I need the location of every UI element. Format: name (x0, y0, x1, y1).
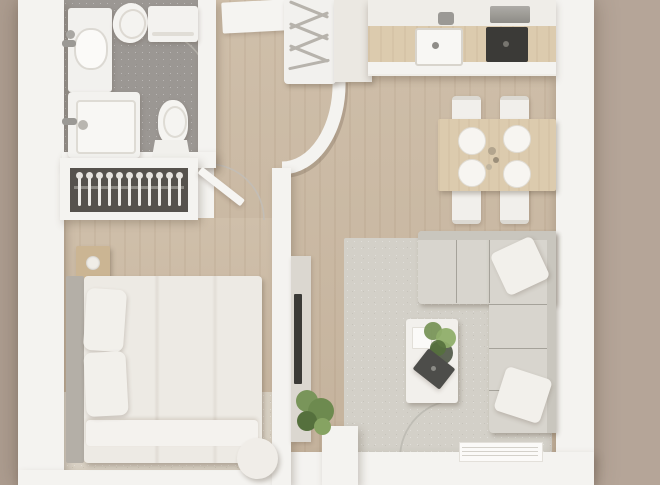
toilet-base (152, 140, 190, 157)
window-pane-line (462, 455, 538, 456)
plate (458, 127, 486, 155)
table-decor-icon (486, 164, 492, 170)
plate (503, 125, 531, 153)
washing-machine-lid-line (152, 32, 194, 36)
shower-drain-icon (78, 120, 88, 130)
sofa-seam (489, 304, 547, 305)
washing-machine (148, 6, 198, 42)
bed-headboard (66, 276, 84, 463)
wall-bathroom-right (198, 0, 216, 168)
hanger-icon (148, 176, 151, 206)
plate (458, 159, 486, 187)
vanity-faucet-icon (62, 40, 76, 47)
sofa-back-edge-right (547, 231, 556, 433)
plate (503, 160, 531, 188)
dining-table (438, 119, 556, 191)
tv (294, 294, 302, 384)
wall-right-outer (556, 0, 594, 485)
vanity-faucet-knob-icon (66, 30, 75, 39)
kitchen-sink (415, 28, 463, 66)
window-pane-line (462, 451, 538, 452)
toilet-seat-ring (163, 106, 187, 138)
bedroom-door-arc (208, 164, 264, 220)
bed-pillow (83, 351, 128, 417)
hanger-icon (158, 176, 161, 206)
sofa-back-edge-top (418, 231, 556, 240)
curved-wall (282, 80, 339, 168)
hanger-icon (178, 176, 181, 206)
table-decor-icon (493, 157, 499, 163)
hanger-icon (168, 176, 171, 206)
kitchen-tall-cabinet (334, 0, 372, 82)
hanger-icon (88, 176, 91, 206)
kitchen-faucet-icon (438, 12, 454, 25)
hanger-icon (138, 176, 141, 206)
wall-bedroom-living (272, 168, 291, 485)
hanger-icon (108, 176, 111, 206)
round-pouf (237, 438, 278, 479)
hanger-icon (78, 176, 81, 206)
wall-stub-balcony (322, 426, 358, 485)
vanity-basin (74, 28, 108, 70)
sofa-seam (489, 240, 490, 303)
shower-faucet-icon (62, 118, 77, 125)
wall-left-outer (18, 0, 64, 485)
floor-plant-icon (314, 418, 331, 435)
hanger-icon (118, 176, 121, 206)
nightstand-knob-icon (86, 256, 100, 270)
sofa-seam (489, 348, 547, 349)
hanger-icon (128, 176, 131, 206)
kitchen-sink-drain-icon (432, 42, 439, 49)
table-decor-icon (488, 147, 496, 155)
balcony-door-arc (400, 400, 458, 458)
window-pane-line (462, 447, 538, 448)
entrance-door-panel (221, 0, 287, 34)
bed-sheet-fold (86, 420, 258, 446)
cooktop-burner-icon (503, 41, 509, 47)
hanger-icon (98, 176, 101, 206)
window-sill (459, 442, 543, 462)
bed-pillow (83, 288, 127, 353)
floorplan-render (0, 0, 660, 485)
extractor-icon (490, 6, 530, 23)
tray-dot-icon (431, 366, 436, 371)
sofa-seam (456, 240, 457, 303)
